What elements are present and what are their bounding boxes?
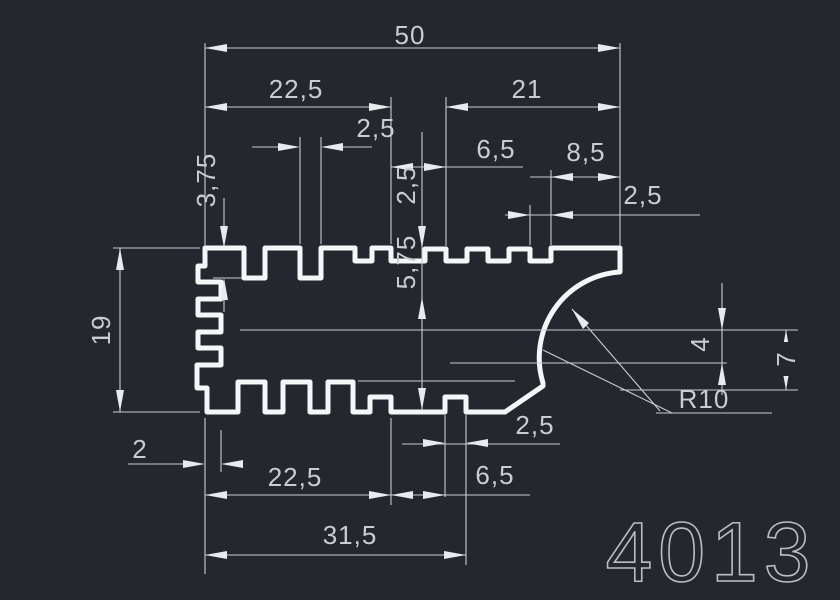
dim-label-bottom-tooth-width: 2,5 — [515, 410, 554, 440]
dim-label-mid-depth: 5,75 — [391, 235, 421, 290]
dim-label-top-left-section: 22,5 — [269, 74, 324, 104]
dim-label-bottom-gap: 6,5 — [475, 460, 514, 490]
dim-label-corner-radius: R10 — [679, 384, 730, 414]
dim-label-fin-notch-width: 2,5 — [356, 113, 395, 143]
dim-label-bottom-mid-section: 31,5 — [323, 520, 378, 550]
dim-label-curve-drop-lower: 7 — [771, 351, 801, 366]
dim-label-bottom-left-section: 22,5 — [268, 462, 323, 492]
dim-label-fin-depth: 3,75 — [191, 153, 221, 208]
part-number: 4013 — [606, 505, 817, 599]
dim-label-right-tooth-gap: 2,5 — [623, 180, 662, 210]
cad-drawing-sheet: 50 22,5 21 2,5 6,5 8,5 2,5 3,75 2,5 5,75… — [0, 0, 840, 600]
dim-label-left-edge-step: 2 — [132, 434, 147, 464]
dim-label-overall-height: 19 — [86, 315, 116, 346]
dim-label-top-right-section: 21 — [512, 74, 543, 104]
dim-label-curve-drop-upper: 4 — [685, 336, 715, 351]
dimension-labels: 50 22,5 21 2,5 6,5 8,5 2,5 3,75 2,5 5,75… — [86, 20, 801, 550]
cad-drawing-canvas: 50 22,5 21 2,5 6,5 8,5 2,5 3,75 2,5 5,75… — [0, 0, 840, 600]
dim-label-top-middle-gap: 6,5 — [476, 134, 515, 164]
dim-label-step-depth: 2,5 — [391, 165, 421, 204]
dim-label-right-lip-width: 8,5 — [566, 137, 605, 167]
dim-label-overall-width: 50 — [395, 20, 426, 50]
